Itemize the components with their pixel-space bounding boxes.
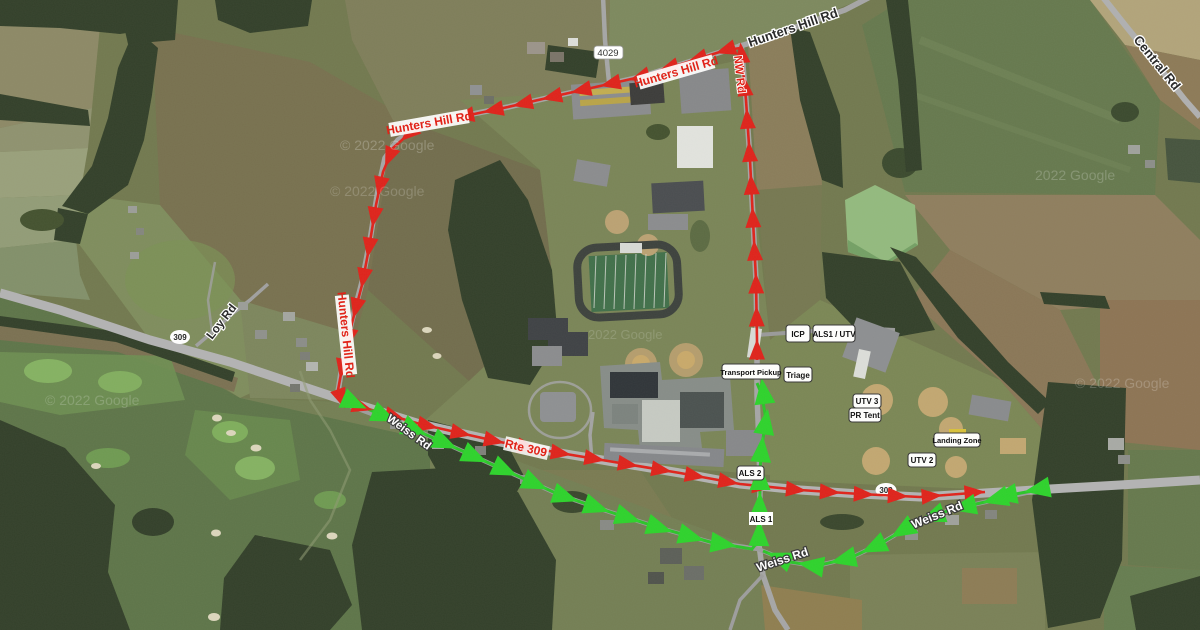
- svg-text:© 2022 Google: © 2022 Google: [330, 183, 425, 199]
- svg-text:4029: 4029: [597, 48, 618, 59]
- svg-text:ALS1 / UTV: ALS1 / UTV: [812, 330, 856, 339]
- svg-text:ALS 1: ALS 1: [750, 515, 773, 524]
- svg-text:© 2022 Google: © 2022 Google: [340, 137, 435, 153]
- svg-text:ALS 2: ALS 2: [739, 469, 762, 478]
- svg-text:© 2022 Google: © 2022 Google: [45, 392, 140, 408]
- svg-text:Transport Pickup: Transport Pickup: [720, 368, 782, 377]
- svg-text:© 2022 Google: © 2022 Google: [1075, 375, 1170, 391]
- svg-text:Landing Zone: Landing Zone: [932, 436, 981, 445]
- svg-text:UTV 3: UTV 3: [856, 397, 879, 406]
- svg-text:ICP: ICP: [791, 330, 805, 339]
- svg-text:2022 Google: 2022 Google: [588, 327, 662, 342]
- svg-text:PR Tent: PR Tent: [850, 411, 880, 420]
- svg-text:UTV 2: UTV 2: [911, 456, 934, 465]
- svg-text:Triage: Triage: [786, 371, 810, 380]
- svg-text:2022 Google: 2022 Google: [1035, 167, 1115, 183]
